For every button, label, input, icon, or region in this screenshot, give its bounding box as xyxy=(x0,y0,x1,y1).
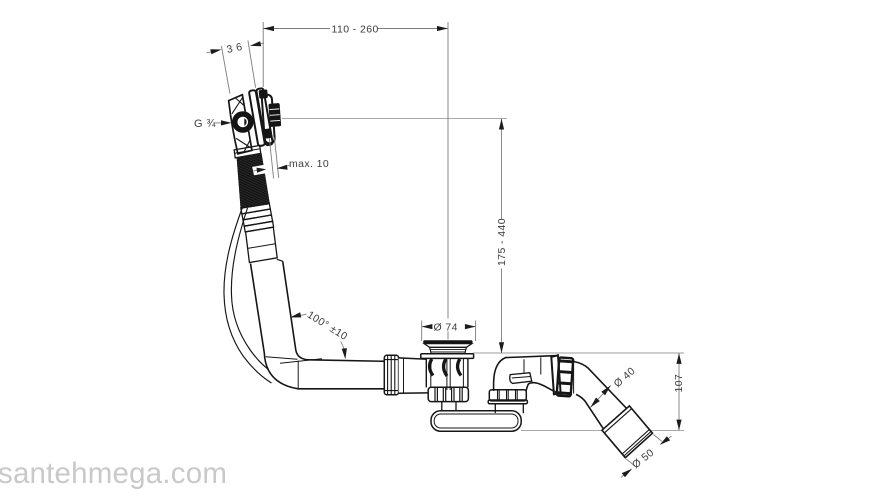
svg-text:santehmega.com: santehmega.com xyxy=(0,457,227,490)
svg-text:175 - 440: 175 - 440 xyxy=(496,218,508,266)
svg-text:max. 10: max. 10 xyxy=(289,158,329,170)
svg-text:Ø 74: Ø 74 xyxy=(434,322,458,334)
svg-text:107: 107 xyxy=(673,374,685,393)
svg-text:G ¾: G ¾ xyxy=(194,118,216,130)
svg-text:110 - 260: 110 - 260 xyxy=(332,23,379,35)
